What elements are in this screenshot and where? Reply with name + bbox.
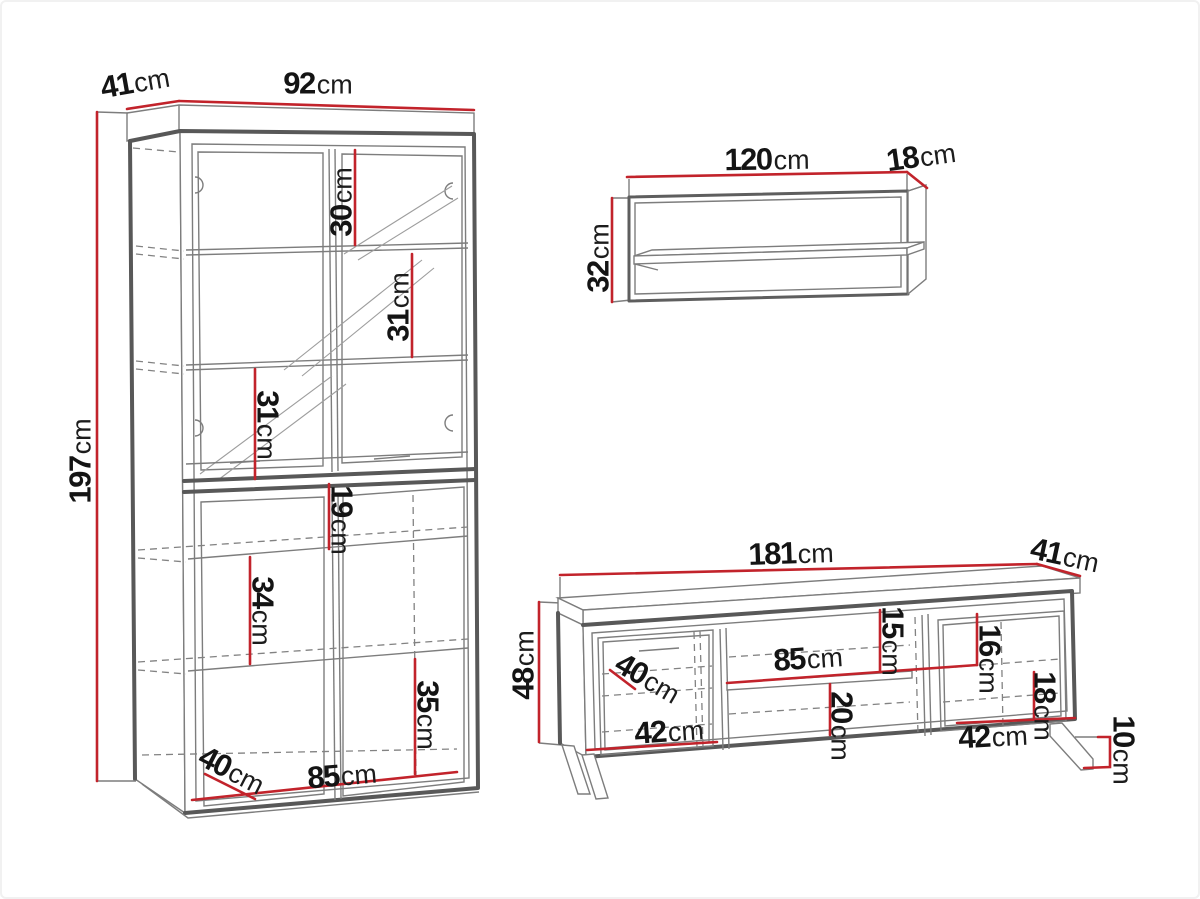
wall-shelf-drawing	[612, 172, 927, 302]
dim-cabinet-spacing-lower: 34cm	[248, 576, 279, 645]
dim-shelf-width: 120cm	[724, 143, 810, 175]
dim-cabinet-spacing-middle: 31cm	[253, 390, 284, 459]
dim-cabinet-width: 92cm	[283, 68, 352, 99]
dim-cabinet-spacing-behind: 19cm	[327, 485, 358, 554]
dim-tvstand-shelf-top-gap: 15cm	[878, 606, 909, 675]
dim-cabinet-height: 197cm	[65, 418, 96, 503]
diagram-line-art	[2, 2, 1200, 899]
dim-tvstand-shelf-width: 85cm	[772, 640, 843, 676]
dim-tvstand-height: 48cm	[508, 630, 539, 699]
dim-tvstand-shelf-bottom-gap: 20cm	[827, 691, 858, 760]
dim-tvstand-width: 181cm	[748, 536, 834, 570]
dim-tvstand-leg-height: 10cm	[1109, 715, 1140, 784]
dim-tvstand-right-bottom-gap: 18cm	[1030, 671, 1061, 740]
dim-cabinet-spacing-top: 30cm	[326, 167, 357, 236]
dim-tvstand-left-compartment: 42cm	[633, 713, 704, 749]
dim-cabinet-spacing-bottom: 35cm	[413, 680, 444, 749]
furniture-dimension-diagram: 41cm 92cm 197cm 30cm 31cm 31cm 19cm 34cm…	[0, 0, 1200, 899]
dim-cabinet-interior-width: 85cm	[306, 757, 378, 794]
dim-tvstand-right-top-gap: 16cm	[975, 624, 1006, 693]
dim-tvstand-right-compartment: 42cm	[957, 719, 1028, 754]
dim-cabinet-spacing-upper: 31cm	[383, 272, 414, 341]
dim-shelf-height: 32cm	[583, 223, 614, 292]
